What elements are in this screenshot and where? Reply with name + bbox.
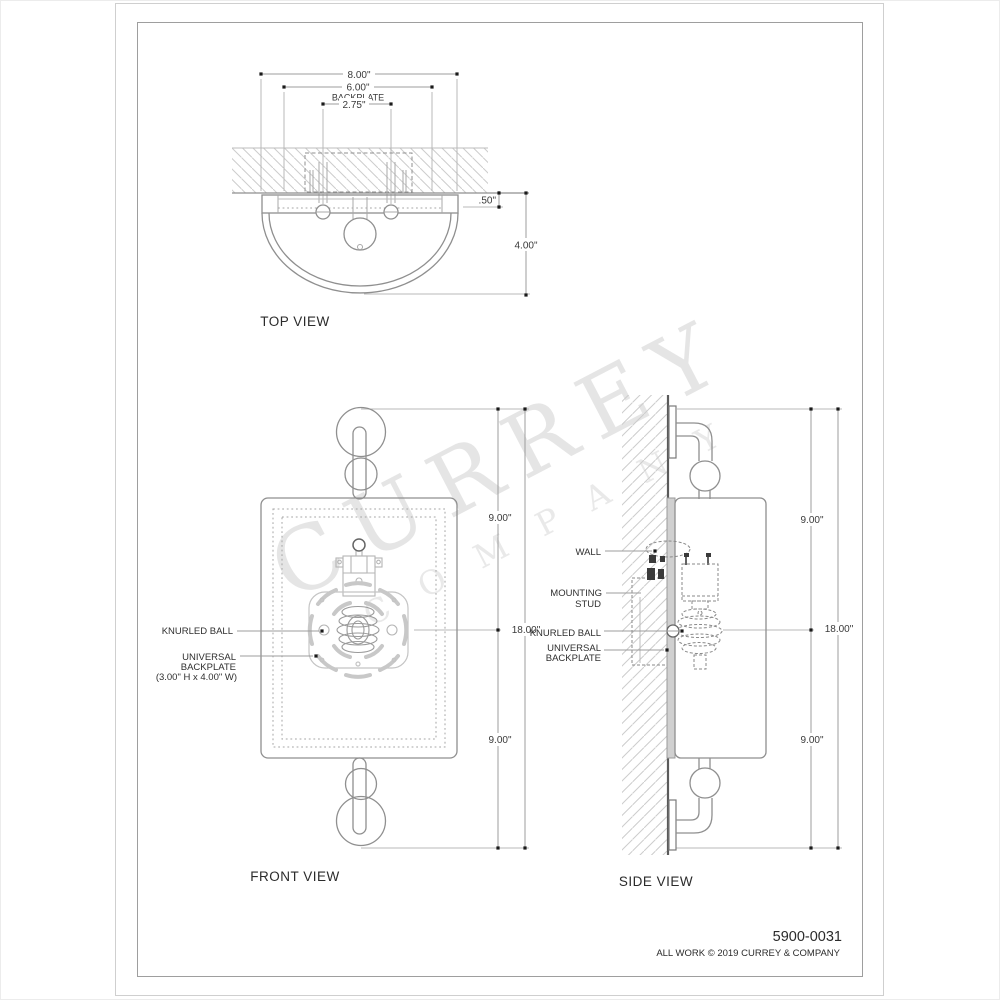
front-socket <box>343 556 375 596</box>
side-top-plate <box>669 406 676 458</box>
front-callout-universal-3: (3.00" H x 4.00" W) <box>156 672 237 683</box>
top-view-fixture-plate <box>262 195 458 213</box>
top-view-wall-hatch <box>232 148 488 193</box>
front-bottom-ring <box>337 797 386 846</box>
front-knurled-ball <box>337 607 379 653</box>
dim-stud-spacing: 2.75" <box>342 100 365 111</box>
side-dim-lower: 9.00" <box>800 735 823 746</box>
front-dim-dots <box>314 407 526 849</box>
side-top-ball <box>690 461 720 491</box>
side-dim-upper: 9.00" <box>800 515 823 526</box>
top-view-drawing: 8.00" 6.00" BACKPLATE 2.75" .50" 4.00" T… <box>232 68 543 329</box>
dim-plate-thickness: .50" <box>479 196 497 207</box>
front-view-title: FRONT VIEW <box>250 869 340 884</box>
front-view-drawing: 9.00" 18.00" 9.00" KNURLED BALL UNIVERSA… <box>156 407 546 884</box>
front-universal-backplate <box>309 583 408 677</box>
front-adjust-knob <box>353 539 365 551</box>
front-bottom-ball <box>346 769 377 800</box>
technical-drawing: 8.00" 6.00" BACKPLATE 2.75" .50" 4.00" T… <box>0 0 1000 1000</box>
side-view-drawing: 9.00" 18.00" 9.00" WALL MOUNTING STUD KN… <box>530 395 860 889</box>
front-top-ball <box>345 458 377 490</box>
product-number: 5900-0031 <box>773 929 842 945</box>
top-view-title: TOP VIEW <box>260 314 330 329</box>
side-callout-wall: WALL <box>575 547 601 558</box>
front-dim-lower: 9.00" <box>488 735 511 746</box>
dim-projection: 4.00" <box>514 241 537 252</box>
side-callout-knurled-ball: KNURLED BALL <box>530 628 601 639</box>
side-callout-universal-2: BACKPLATE <box>546 653 601 664</box>
side-dim-dots <box>653 407 839 849</box>
side-bottom-ball <box>690 768 720 798</box>
side-callout-mounting-1: MOUNTING <box>550 588 602 599</box>
side-bottom-plate <box>669 800 676 850</box>
side-body <box>675 498 766 758</box>
copyright-notice: ALL WORK © 2019 CURREY & COMPANY <box>656 948 840 959</box>
side-callout-mounting-2: STUD <box>575 599 601 610</box>
front-callout-knurled-ball: KNURLED BALL <box>162 626 233 637</box>
title-block: 5900-0031 ALL WORK © 2019 CURREY & COMPA… <box>656 929 842 959</box>
side-dim-overall: 18.00" <box>825 624 854 635</box>
side-view-wall-hatch <box>622 395 668 855</box>
side-view-title: SIDE VIEW <box>619 874 693 889</box>
front-top-ring <box>337 408 386 457</box>
top-view-knuckle <box>344 218 376 250</box>
spec-sheet: CURREY COMPANY <box>0 0 1000 1000</box>
front-body <box>261 498 457 758</box>
front-dim-upper: 9.00" <box>488 513 511 524</box>
dim-overall-width: 8.00" <box>347 70 370 81</box>
